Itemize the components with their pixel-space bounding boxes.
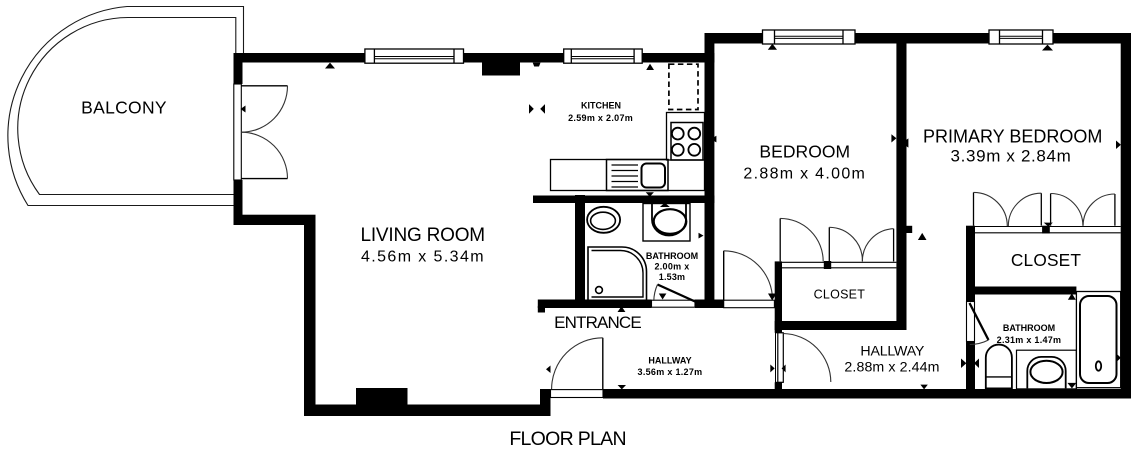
- svg-text:CLOSET: CLOSET: [1011, 250, 1082, 270]
- svg-text:2.88m x 4.00m: 2.88m x 4.00m: [743, 166, 866, 183]
- svg-text:2.88m x 2.44m: 2.88m x 2.44m: [844, 360, 939, 376]
- svg-text:BATHROOM: BATHROOM: [646, 251, 698, 261]
- svg-text:CLOSET: CLOSET: [814, 288, 866, 302]
- svg-text:3.56m x 1.27m: 3.56m x 1.27m: [638, 367, 703, 377]
- svg-text:1.53m: 1.53m: [659, 272, 686, 282]
- svg-text:HALLWAY: HALLWAY: [648, 356, 691, 366]
- svg-text:3.39m x 2.84m: 3.39m x 2.84m: [951, 147, 1072, 166]
- svg-text:4.56m x 5.34m: 4.56m x 5.34m: [361, 249, 485, 266]
- svg-text:BATHROOM: BATHROOM: [1003, 323, 1055, 333]
- svg-text:HALLWAY: HALLWAY: [860, 344, 925, 360]
- svg-text:FLOOR PLAN: FLOOR PLAN: [509, 428, 626, 450]
- svg-text:PRIMARY BEDROOM: PRIMARY BEDROOM: [923, 127, 1102, 147]
- svg-text:KITCHEN: KITCHEN: [581, 101, 621, 111]
- svg-text:2.31m x 1.47m: 2.31m x 1.47m: [997, 335, 1062, 345]
- svg-text:2.59m x 2.07m: 2.59m x 2.07m: [568, 113, 633, 123]
- svg-text:BALCONY: BALCONY: [81, 98, 167, 118]
- svg-text:2.00m x: 2.00m x: [654, 262, 689, 272]
- svg-text:LIVING ROOM: LIVING ROOM: [360, 225, 484, 246]
- svg-text:BEDROOM: BEDROOM: [759, 142, 850, 162]
- svg-text:ENTRANCE: ENTRANCE: [554, 313, 641, 332]
